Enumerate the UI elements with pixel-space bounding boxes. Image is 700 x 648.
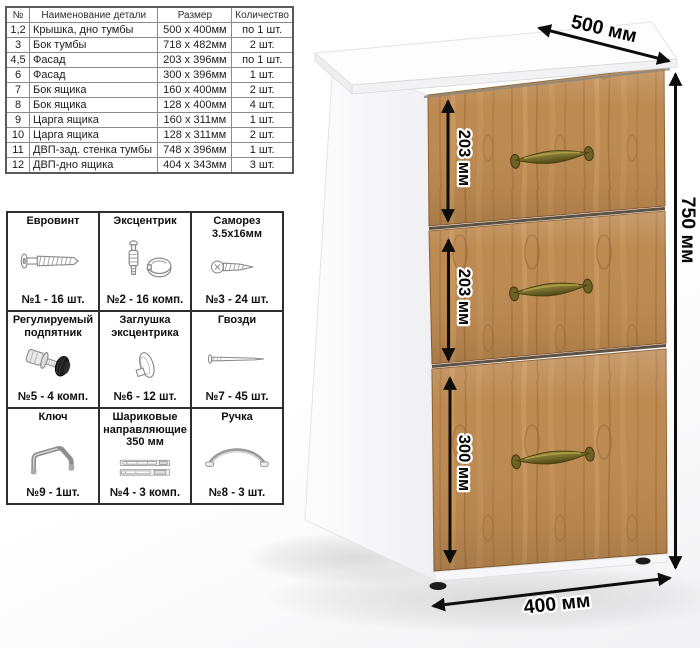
hardware-item-title: Эксцентрик: [113, 215, 176, 228]
hardware-item-count: №8 - 3 шт.: [209, 487, 265, 500]
part-name: Бок тумбы: [30, 38, 158, 53]
hardware-item-count: №4 - 3 комп.: [110, 487, 180, 500]
part-size: 160 x 311мм: [158, 113, 232, 128]
part-name: Бок ящика: [30, 98, 158, 113]
dim-label-drawer3: 300 мм: [455, 435, 473, 492]
part-name: ДВП-зад. стенка тумбы: [30, 143, 158, 158]
parts-header-num: №: [6, 7, 30, 23]
part-size: 300 x 396мм: [158, 68, 232, 83]
hardware-item-count: №7 - 45 шт.: [206, 391, 269, 404]
part-size: 203 x 396мм: [158, 53, 232, 68]
part-qty: 2 шт.: [232, 38, 293, 53]
hardware-item-count: №3 - 24 шт.: [206, 294, 269, 307]
parts-row: 6Фасад300 x 396мм1 шт.: [6, 68, 293, 83]
eccentric-cam-icon: [103, 228, 187, 295]
part-num: 9: [6, 113, 30, 128]
part-qty: 4 шт.: [232, 98, 293, 113]
part-size: 128 x 311мм: [158, 128, 232, 143]
part-qty: по 1 шт.: [232, 53, 293, 68]
part-size: 404 x 343мм: [158, 158, 232, 174]
part-num: 3: [6, 38, 30, 53]
hardware-item-title: Ключ: [38, 411, 67, 424]
hardware-cell-handle: Ручка №8 - 3 шт.: [191, 408, 283, 504]
part-name: ДВП-дно ящика: [30, 158, 158, 174]
part-num: 1,2: [6, 23, 30, 38]
parts-table: № Наименование детали Размер Количество …: [5, 6, 294, 174]
part-size: 160 x 400мм: [158, 83, 232, 98]
part-num: 10: [6, 128, 30, 143]
part-num: 11: [6, 143, 30, 158]
hardware-item-title: Евровинт: [26, 215, 79, 228]
parts-row: 11ДВП-зад. стенка тумбы748 x 396мм1 шт.: [6, 143, 293, 158]
self-tapping-screw-icon: [202, 240, 272, 294]
hardware-item-title: Гвозди: [218, 314, 256, 327]
hardware-cell-key: Ключ №9 - 1шт.: [7, 408, 99, 504]
hardware-cell-foot: Регулируемый подпятник №5 - 4 комп.: [7, 311, 99, 408]
hardware-row: Регулируемый подпятник №5 - 4 комп. Загл…: [7, 311, 283, 408]
part-size: 748 x 396мм: [158, 143, 232, 158]
hardware-cell-eccentric: Эксцентрик №2 - 16 комп.: [99, 212, 191, 311]
hardware-table: Евровинт №1 - 16 шт. Эксцентрик №2 - 16 …: [6, 211, 284, 505]
part-size: 128 x 400мм: [158, 98, 232, 113]
part-qty: 3 шт.: [232, 158, 293, 174]
parts-row: 4,5Фасад203 x 396ммпо 1 шт.: [6, 53, 293, 68]
parts-row: 3Бок тумбы718 x 482мм2 шт.: [6, 38, 293, 53]
part-size: 500 x 400мм: [158, 23, 232, 38]
hardware-row: Евровинт №1 - 16 шт. Эксцентрик №2 - 16 …: [7, 212, 283, 311]
part-name: Крышка, дно тумбы: [30, 23, 158, 38]
hardware-item-title: Заглушка эксцентрика: [102, 314, 188, 339]
parts-header-row: № Наименование детали Размер Количество: [6, 7, 293, 23]
hardware-cell-nails: Гвозди №7 - 45 шт.: [191, 311, 283, 408]
part-name: Бок ящика: [30, 83, 158, 98]
hardware-item-title: Шариковые направляющие 350 мм: [102, 411, 188, 449]
part-name: Фасад: [30, 53, 158, 68]
cabinet-foot: [430, 582, 447, 590]
part-qty: 2 шт.: [232, 128, 293, 143]
hardware-cell-slides: Шариковые направляющие 350 мм №4 - 3 ком…: [99, 408, 191, 504]
part-qty: 2 шт.: [232, 83, 293, 98]
eurovint-screw-icon: [11, 228, 95, 295]
part-num: 4,5: [6, 53, 30, 68]
part-qty: по 1 шт.: [232, 23, 293, 38]
parts-row: 9Царга ящика160 x 311мм1 шт.: [6, 113, 293, 128]
parts-header-name: Наименование детали: [30, 7, 158, 23]
hardware-cell-eurovint: Евровинт №1 - 16 шт.: [7, 212, 99, 311]
parts-header-qty: Количество: [232, 7, 293, 23]
hardware-item-count: №2 - 16 комп.: [107, 294, 184, 307]
hardware-item-title: Регулируемый подпятник: [10, 314, 96, 339]
ball-bearing-slides-icon: [103, 449, 187, 488]
parts-header-size: Размер: [158, 7, 232, 23]
nail-icon: [197, 327, 277, 392]
part-name: Фасад: [30, 68, 158, 83]
part-size: 718 x 482мм: [158, 38, 232, 53]
hardware-item-count: №1 - 16 шт.: [22, 294, 85, 307]
bow-handle-icon: [195, 424, 279, 488]
parts-row: 7Бок ящика160 x 400мм2 шт.: [6, 83, 293, 98]
parts-row: 1,2Крышка, дно тумбы500 x 400ммпо 1 шт.: [6, 23, 293, 38]
part-qty: 1 шт.: [232, 143, 293, 158]
cabinet-side-panel: [305, 60, 436, 581]
cam-cover-icon: [103, 339, 187, 391]
hardware-cell-screw: Саморез 3.5х16мм №3 - 24 шт.: [191, 212, 283, 311]
dim-label-drawer2: 203 мм: [455, 269, 473, 326]
parts-row: 10Царга ящика128 x 311мм2 шт.: [6, 128, 293, 143]
hardware-row: Ключ №9 - 1шт. Шариковые направляющие 35…: [7, 408, 283, 504]
hardware-item-title: Ручка: [221, 411, 252, 424]
part-num: 6: [6, 68, 30, 83]
part-num: 12: [6, 158, 30, 174]
part-name: Царга ящика: [30, 128, 158, 143]
hardware-item-count: №6 - 12 шт.: [114, 391, 177, 404]
adjustable-foot-icon: [13, 339, 93, 391]
hardware-item-title: Саморез 3.5х16мм: [194, 215, 280, 240]
dim-label-drawer1: 203 мм: [455, 130, 473, 187]
part-num: 8: [6, 98, 30, 113]
part-name: Царга ящика: [30, 113, 158, 128]
assembly-spec-sheet: 203 мм 203 мм 300 мм 750 мм 500 мм 400 м…: [0, 0, 700, 648]
dim-label-height: 750 мм: [677, 197, 699, 264]
part-qty: 1 шт.: [232, 113, 293, 128]
hardware-item-count: №5 - 4 комп.: [18, 391, 88, 404]
hardware-item-count: №9 - 1шт.: [26, 487, 79, 500]
part-num: 7: [6, 83, 30, 98]
hardware-cell-cap: Заглушка эксцентрика №6 - 12 шт.: [99, 311, 191, 408]
hex-key-icon: [18, 424, 88, 488]
cabinet-foot: [636, 558, 651, 565]
parts-row: 8Бок ящика128 x 400мм4 шт.: [6, 98, 293, 113]
parts-row: 12ДВП-дно ящика404 x 343мм3 шт.: [6, 158, 293, 174]
part-qty: 1 шт.: [232, 68, 293, 83]
